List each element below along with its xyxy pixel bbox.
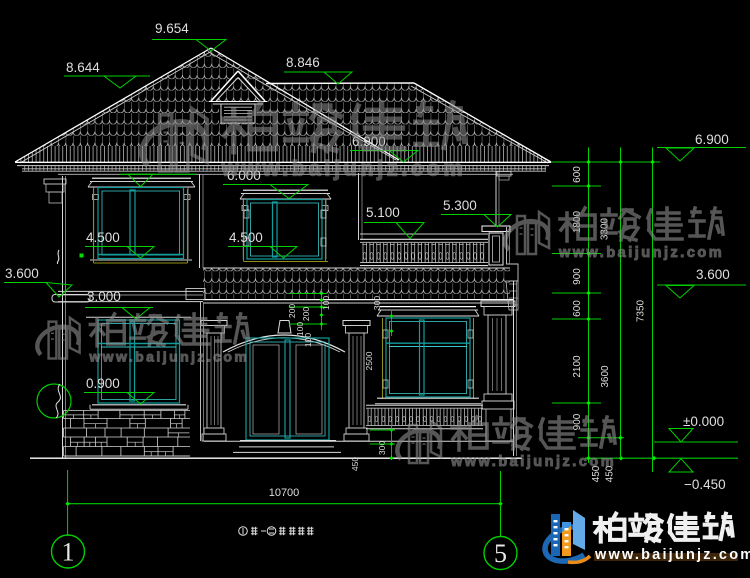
svg-text:7350: 7350: [636, 299, 647, 322]
svg-text:600: 600: [572, 166, 583, 183]
svg-text:10700: 10700: [269, 487, 300, 499]
svg-text:4.500: 4.500: [86, 230, 120, 245]
svg-text:−0.450: −0.450: [684, 477, 726, 492]
svg-text:3.600: 3.600: [5, 266, 39, 281]
svg-text:3.600: 3.600: [696, 267, 730, 282]
svg-text:9.654: 9.654: [155, 21, 189, 36]
svg-text:200: 200: [287, 304, 297, 318]
svg-text:100: 100: [321, 296, 331, 310]
svg-text:6.900: 6.900: [695, 132, 729, 147]
svg-text:200: 200: [301, 307, 311, 321]
svg-text:300: 300: [377, 441, 387, 455]
svg-text:300: 300: [372, 296, 382, 310]
svg-text:5: 5: [494, 539, 507, 568]
svg-text:100: 100: [295, 322, 305, 336]
svg-text:2500: 2500: [364, 351, 374, 370]
svg-text:2100: 2100: [572, 355, 583, 378]
svg-text:3.000: 3.000: [87, 289, 121, 304]
svg-text:8.846: 8.846: [286, 55, 320, 70]
svg-text:5.300: 5.300: [443, 198, 477, 213]
svg-text:8.644: 8.644: [66, 60, 100, 75]
svg-text:600: 600: [572, 300, 583, 317]
svg-text:±0.000: ±0.000: [683, 414, 724, 429]
svg-text:www.baijunjz.com: www.baijunjz.com: [594, 547, 750, 563]
svg-text:900: 900: [572, 268, 583, 285]
svg-text:1: 1: [62, 538, 75, 567]
svg-text:0.900: 0.900: [86, 376, 120, 391]
svg-text:900: 900: [572, 413, 583, 430]
svg-text:4.500: 4.500: [229, 230, 263, 245]
svg-text:5.100: 5.100: [366, 205, 400, 220]
svg-text:3600: 3600: [600, 365, 611, 388]
svg-text:450: 450: [350, 457, 360, 471]
